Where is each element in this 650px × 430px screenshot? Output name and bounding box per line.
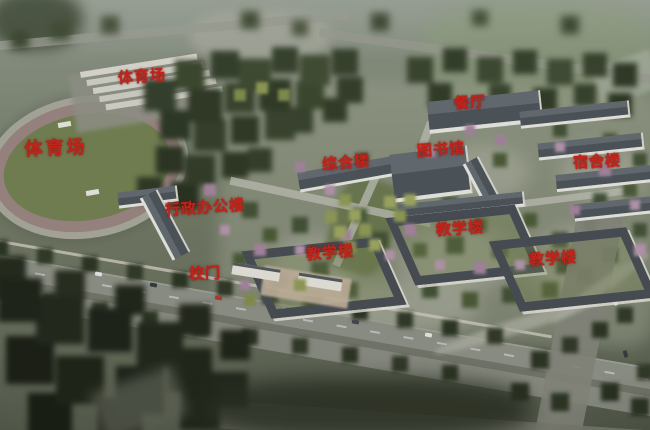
- shadow-area: [200, 378, 530, 430]
- label-teaching-building-right: 教学楼: [528, 246, 577, 270]
- label-complex-building: 综合楼: [321, 149, 371, 174]
- label-teaching-building-center: 教学楼: [435, 216, 484, 240]
- label-teaching-building-left: 教学楼: [305, 239, 355, 264]
- label-library: 图书馆: [416, 137, 465, 161]
- label-school-gate: 校门: [189, 262, 222, 284]
- label-dormitory: 宿舍楼: [572, 149, 621, 172]
- label-stadium-field: 体育场: [24, 133, 88, 161]
- label-canteen: 餐厅: [453, 90, 486, 113]
- clearing: [89, 365, 189, 430]
- car: [623, 350, 629, 358]
- campus-aerial-rendering: 体育场 体育场 餐厅 综合楼 图书馆 宿舍楼 行政办公楼 教学楼 教学楼 教学楼…: [0, 0, 650, 430]
- label-stadium-north: 体育场: [117, 64, 166, 88]
